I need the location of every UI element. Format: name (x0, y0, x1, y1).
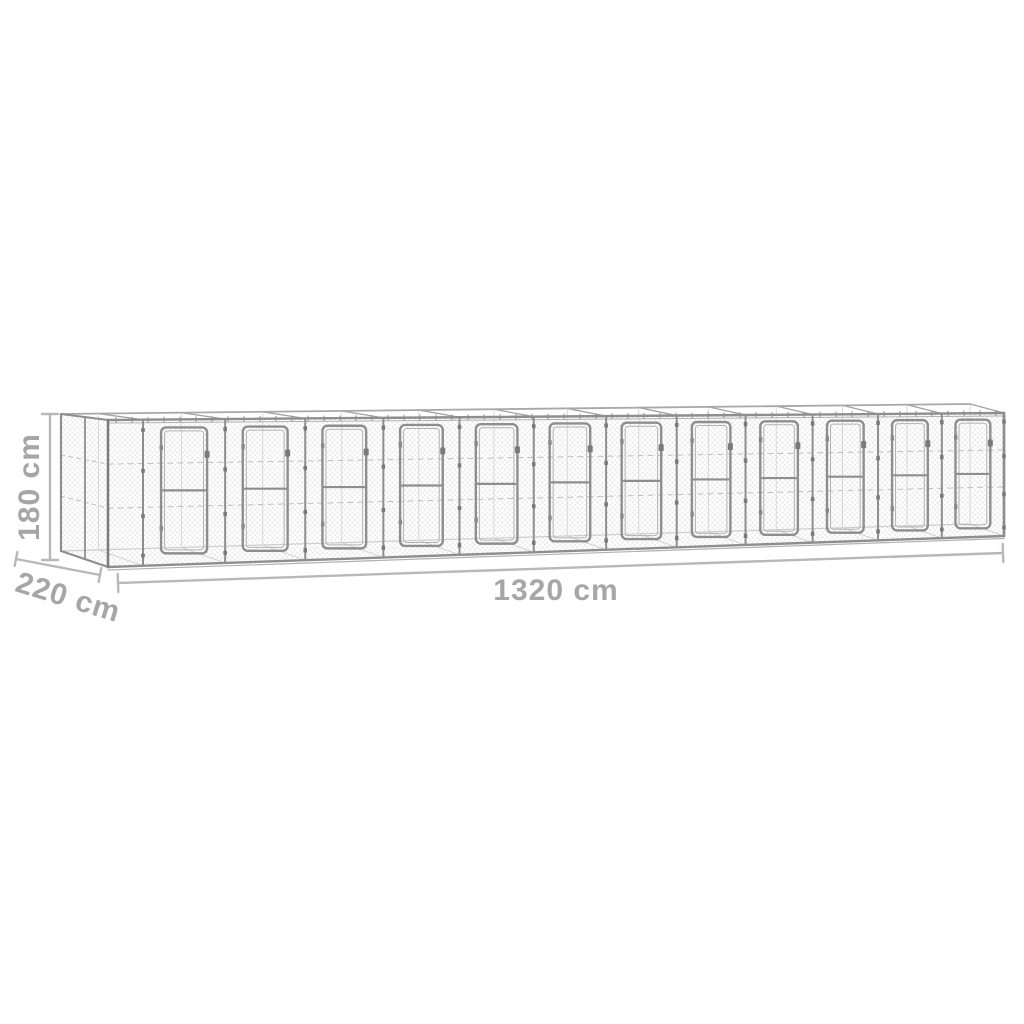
width-dimension-label: 1320 cm (493, 576, 618, 606)
height-dimension-label: 180 cm (15, 433, 45, 541)
product-dimension-figure: 180 cm 220 cm 1320 cm (0, 0, 1024, 1024)
kennel-wireframe (0, 0, 1024, 1024)
